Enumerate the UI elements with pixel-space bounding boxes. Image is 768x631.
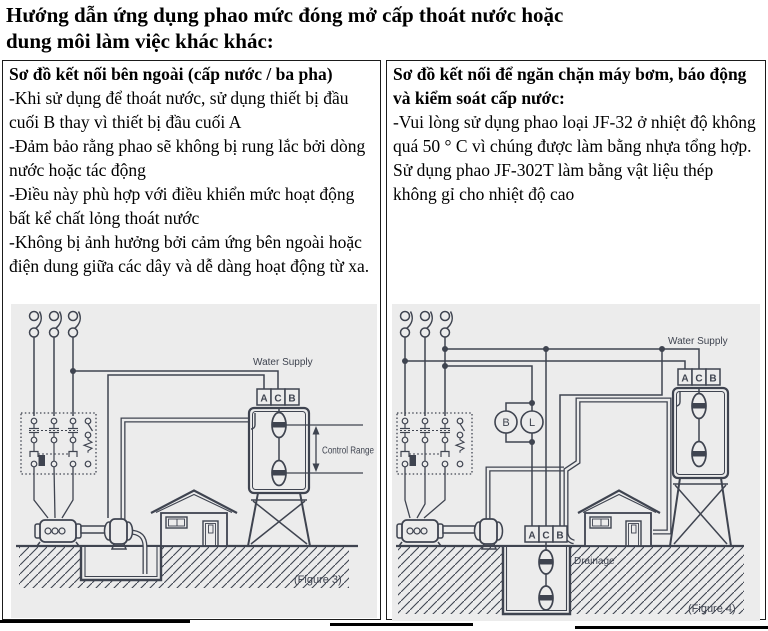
control-range-arrow	[313, 426, 320, 472]
relay-contacts	[400, 418, 465, 467]
right-panel-paragraph: -Vui lòng sử dụng phao loại JF-32 ở nhiệ…	[393, 110, 759, 206]
tank-terminal-c-label: C	[695, 374, 702, 385]
figure4-caption: (Figure 4)	[688, 603, 736, 615]
left-panel: Sơ đồ kết nối bên ngoài (cấp nước / ba p…	[2, 60, 381, 620]
pump	[475, 519, 503, 549]
sump-terminal-a-label: A	[528, 531, 535, 542]
sump-float-upper	[539, 550, 553, 574]
terminal-b-label: B	[288, 394, 295, 405]
control-range-label: Control Range	[322, 446, 374, 457]
lamp-label: L	[529, 417, 535, 429]
drainage-label: Drainage	[574, 556, 615, 567]
right-panel-text: Sơ đồ kết nối để ngăn chặn máy bơm, báo …	[387, 61, 765, 206]
pump	[105, 519, 133, 549]
water-supply-label: Water Supply	[253, 357, 313, 368]
figure3: Water Supply A C B Control Range (Figure…	[11, 304, 377, 618]
tank-float-lower	[692, 442, 706, 467]
wire-to-a	[108, 375, 264, 518]
figure4: Water Supply A C B B L A C B Drainage (F…	[392, 304, 760, 621]
water-supply-label: Water Supply	[668, 336, 728, 347]
buzzer-label: B	[502, 417, 509, 429]
relay-contacts	[29, 418, 93, 467]
sump-terminal-c-label: C	[542, 531, 549, 542]
left-panel-paragraph: -Khi sử dụng để thoát nước, sử dụng thiế…	[9, 86, 374, 134]
tank-terminal-a-label: A	[681, 374, 688, 385]
motor	[397, 520, 443, 546]
left-panel-text: Sơ đồ kết nối bên ngoài (cấp nước / ba p…	[3, 61, 380, 278]
knife-switches	[30, 312, 81, 417]
junction-dot	[529, 439, 535, 445]
right-panel: Sơ đồ kết nối để ngăn chặn máy bơm, báo …	[386, 60, 766, 620]
float-switch-lower	[272, 461, 286, 486]
riser-pipe	[123, 420, 251, 522]
pump-discharge-pipe	[488, 469, 564, 522]
figure3-caption: (Figure 3)	[294, 574, 342, 586]
water-tower	[670, 478, 731, 546]
wire-sump-b	[560, 349, 662, 526]
sump-terminal-b-label: B	[556, 531, 563, 542]
scan-line	[0, 620, 190, 623]
page-title: Hướng dẫn ứng dụng phao mức đóng mở cấp …	[6, 2, 746, 54]
left-panel-paragraph: -Điều này phù hợp với điều khiển mức hoạ…	[9, 182, 374, 230]
wire-to-c	[73, 371, 278, 389]
sump-float-lower	[539, 586, 553, 610]
right-panel-heading: Sơ đồ kết nối để ngăn chặn máy bơm, báo …	[393, 62, 759, 110]
house	[151, 491, 237, 547]
wire-to-alarm	[445, 366, 532, 403]
terminal-a-label: A	[260, 394, 267, 405]
junction-dot	[529, 400, 535, 406]
tank-float-upper	[692, 394, 706, 419]
water-tower	[248, 493, 310, 546]
knife-switches	[401, 312, 453, 417]
figure3-diagram: Water Supply A C B Control Range (Figure…	[11, 304, 377, 618]
page-title-line1: Hướng dẫn ứng dụng phao mức đóng mở cấp …	[6, 2, 746, 28]
left-panel-paragraph: -Không bị ảnh hưởng bởi cảm ứng bên ngoà…	[9, 230, 374, 278]
figure4-diagram: Water Supply A C B B L A C B Drainage (F…	[392, 304, 760, 621]
motor	[35, 520, 81, 546]
tank-terminal-b-label: B	[709, 374, 716, 385]
terminal-c-label: C	[274, 394, 281, 405]
page-title-line2: dung môi làm việc khác khác:	[6, 28, 746, 54]
house	[578, 491, 660, 547]
scan-line	[575, 626, 768, 629]
float-switch-upper	[272, 413, 286, 438]
coupling	[443, 526, 475, 533]
scan-line	[330, 623, 473, 626]
left-panel-heading: Sơ đồ kết nối bên ngoài (cấp nước / ba p…	[9, 62, 374, 86]
left-panel-paragraph: -Đảm bảo rằng phao sẽ không bị rung lắc …	[9, 134, 374, 182]
